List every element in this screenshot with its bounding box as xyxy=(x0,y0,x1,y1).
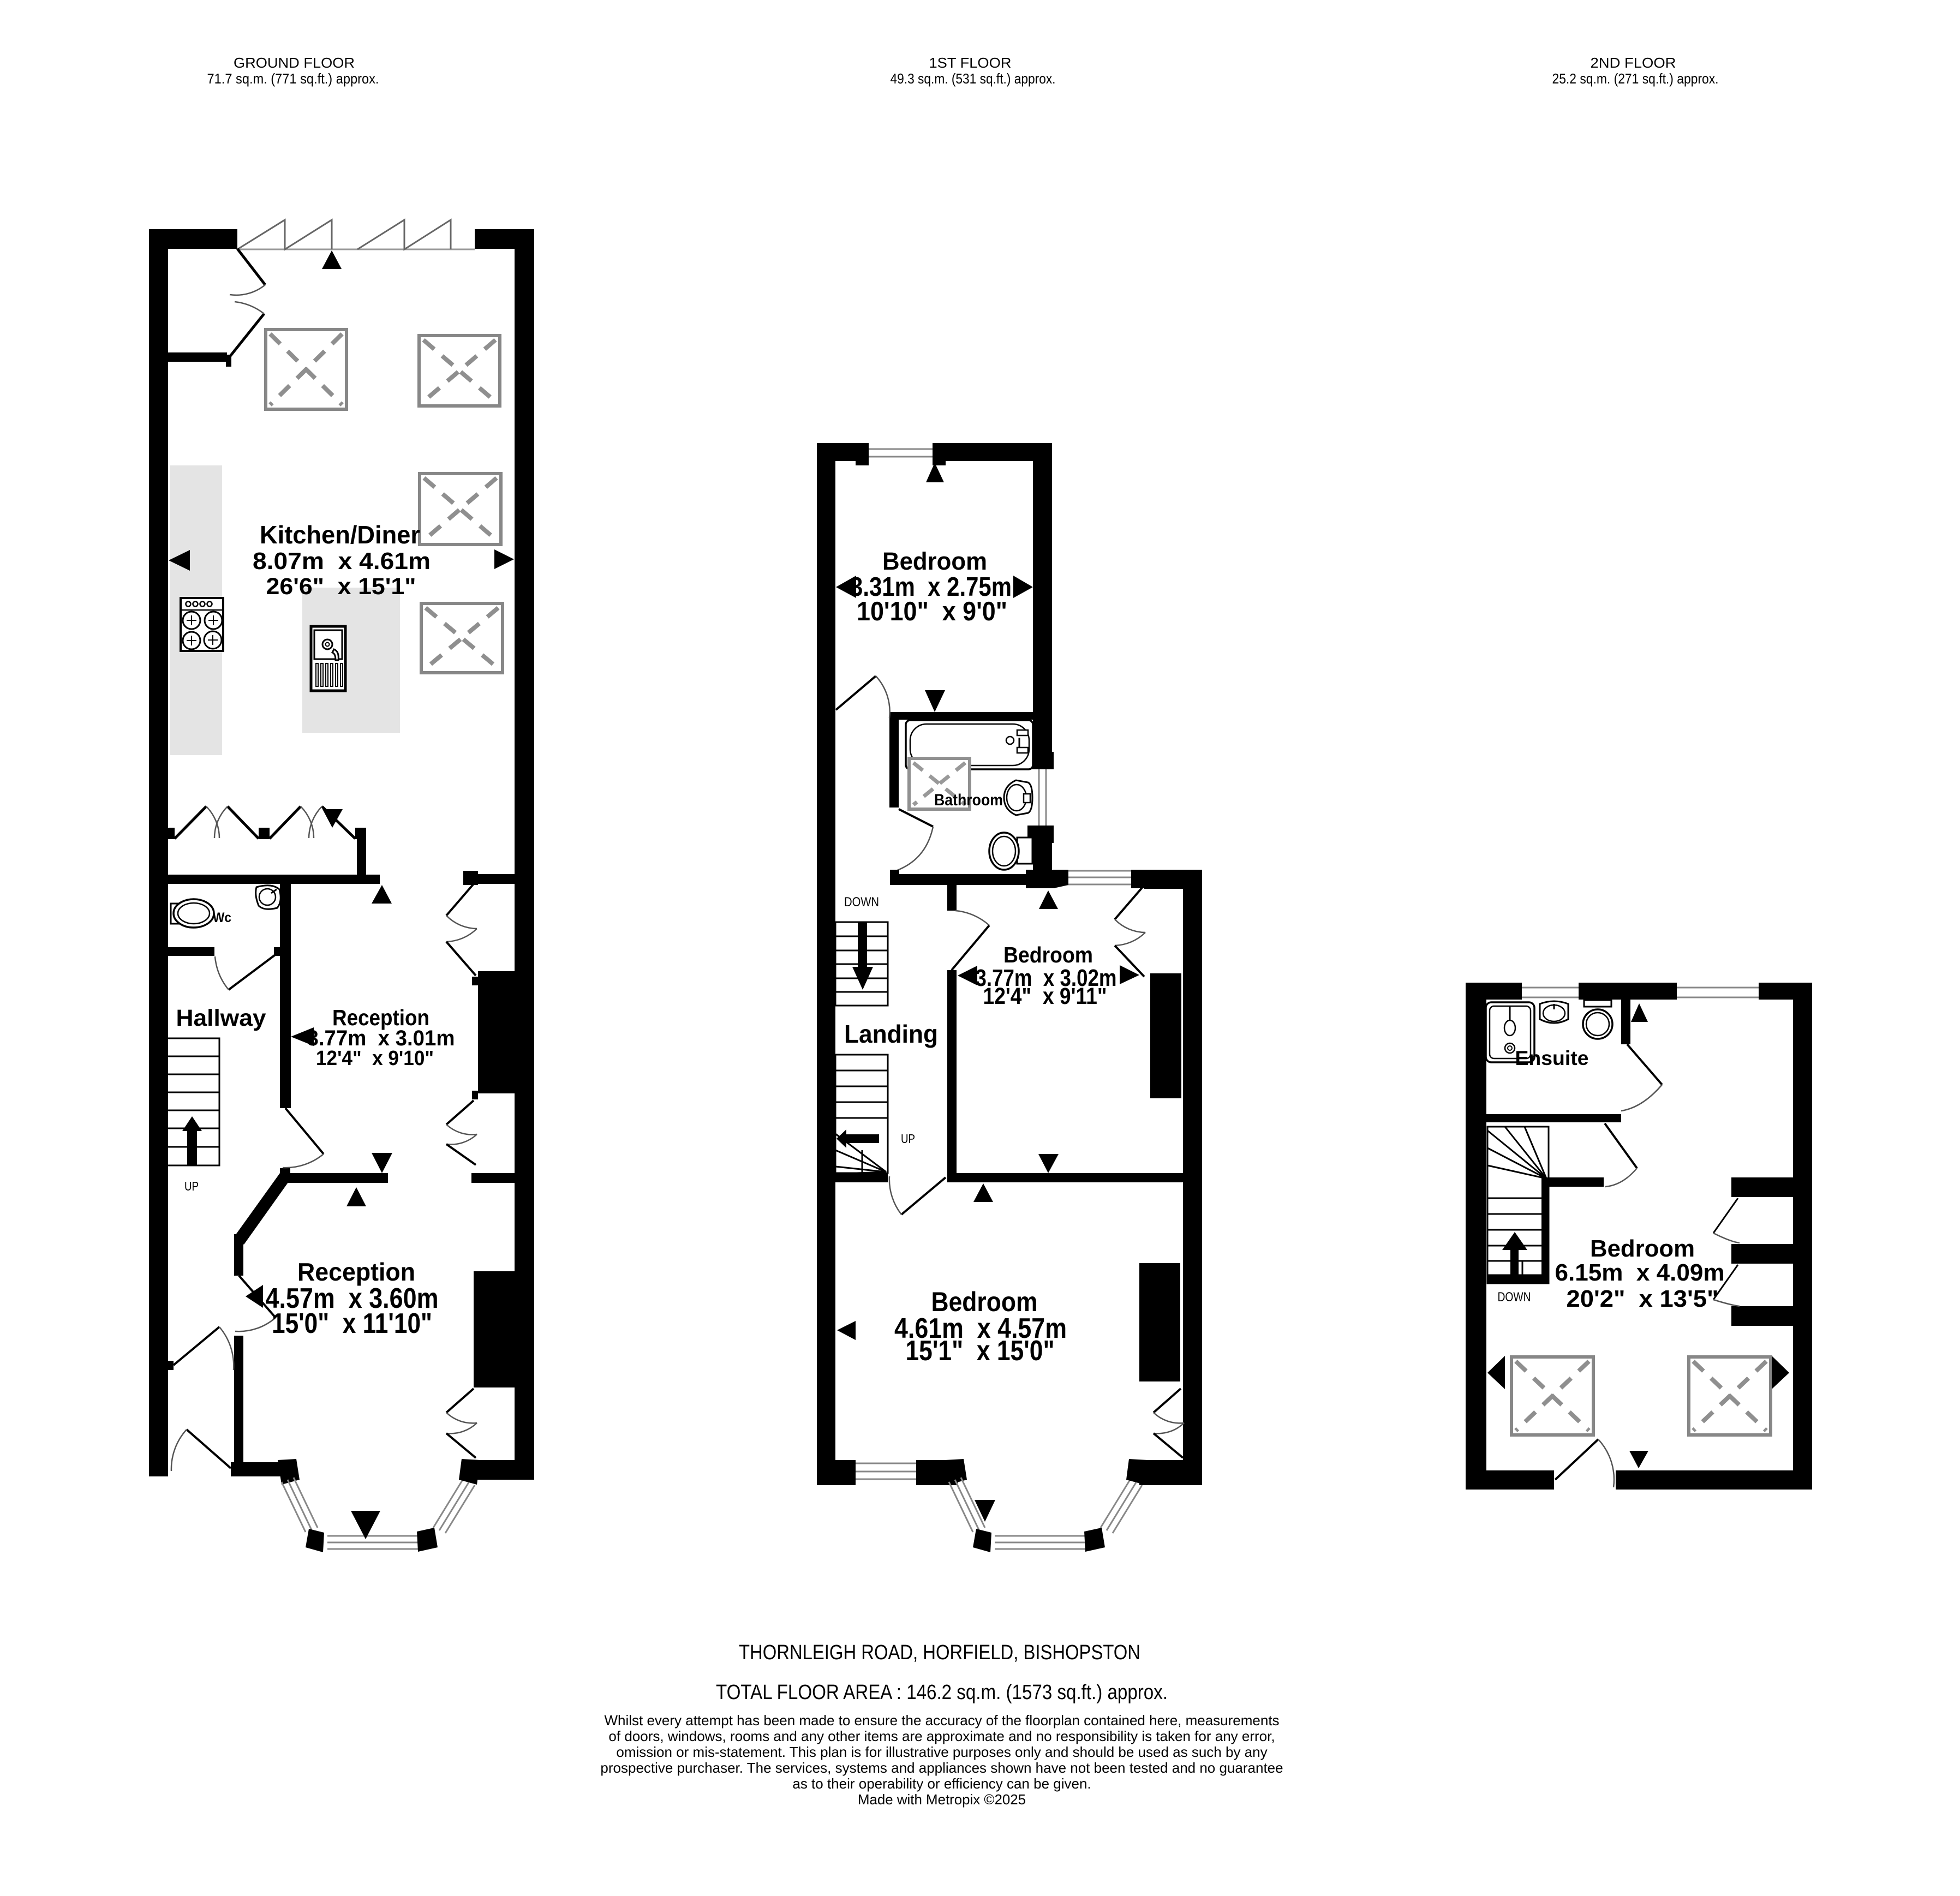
svg-text:12'4" x 9'10": 12'4" x 9'10" xyxy=(316,1047,434,1070)
svg-text:25.2 sq.m. (271 sq.ft.) approx: 25.2 sq.m. (271 sq.ft.) approx. xyxy=(1552,70,1719,87)
svg-text:Wc: Wc xyxy=(213,910,231,925)
svg-text:DOWN: DOWN xyxy=(1498,1290,1531,1305)
svg-text:as to their operability or eff: as to their operability or efficiency ca… xyxy=(792,1775,1091,1792)
svg-text:2ND FLOOR: 2ND FLOOR xyxy=(1591,55,1676,71)
svg-text:10'10" x 9'0": 10'10" x 9'0" xyxy=(857,597,1007,626)
svg-text:of doors, windows, rooms and a: of doors, windows, rooms and any other i… xyxy=(608,1728,1275,1744)
svg-text:Bedroom: Bedroom xyxy=(1590,1235,1695,1262)
svg-text:Hallway: Hallway xyxy=(176,1005,266,1031)
svg-text:15'0" x 11'10": 15'0" x 11'10" xyxy=(272,1308,432,1339)
svg-text:71.7 sq.m. (771 sq.ft.) approx: 71.7 sq.m. (771 sq.ft.) approx. xyxy=(207,70,379,87)
svg-text:20'2" x 13'5": 20'2" x 13'5" xyxy=(1567,1285,1719,1312)
svg-text:26'6" x 15'1": 26'6" x 15'1" xyxy=(266,573,416,600)
svg-text:49.3 sq.m. (531 sq.ft.) approx: 49.3 sq.m. (531 sq.ft.) approx. xyxy=(891,70,1056,87)
svg-text:1ST FLOOR: 1ST FLOOR xyxy=(929,55,1012,71)
svg-text:THORNLEIGH ROAD, HORFIELD, BIS: THORNLEIGH ROAD, HORFIELD, BISHOPSTON xyxy=(739,1641,1140,1664)
svg-text:Bathroom: Bathroom xyxy=(934,791,1003,809)
svg-text:Bedroom: Bedroom xyxy=(1003,942,1093,967)
svg-text:6.15m x 4.09m: 6.15m x 4.09m xyxy=(1555,1259,1725,1286)
svg-text:GROUND FLOOR: GROUND FLOOR xyxy=(234,55,355,71)
svg-text:omission or mis-statement. Thi: omission or mis-statement. This plan is … xyxy=(616,1744,1267,1760)
svg-text:UP: UP xyxy=(901,1132,915,1146)
svg-text:UP: UP xyxy=(184,1179,199,1193)
svg-text:Reception: Reception xyxy=(297,1258,415,1286)
svg-text:Ensuite: Ensuite xyxy=(1515,1047,1589,1069)
svg-text:Made with Metropix ©2025: Made with Metropix ©2025 xyxy=(858,1791,1026,1808)
svg-text:Kitchen/Diner: Kitchen/Diner xyxy=(260,521,420,549)
svg-text:15'1" x 15'0": 15'1" x 15'0" xyxy=(906,1335,1055,1367)
svg-text:TOTAL FLOOR AREA : 146.2 sq.m.: TOTAL FLOOR AREA : 146.2 sq.m. (1573 sq.… xyxy=(716,1681,1168,1704)
svg-text:DOWN: DOWN xyxy=(844,895,879,910)
svg-text:Landing: Landing xyxy=(844,1020,938,1048)
svg-text:12'4" x 9'11": 12'4" x 9'11" xyxy=(983,983,1107,1009)
svg-text:8.07m x 4.61m: 8.07m x 4.61m xyxy=(253,548,431,575)
svg-text:prospective purchaser. The ser: prospective purchaser. The services, sys… xyxy=(600,1760,1283,1776)
svg-text:Bedroom: Bedroom xyxy=(882,547,987,575)
svg-text:Whilst every attempt has been: Whilst every attempt has been made to en… xyxy=(604,1712,1279,1728)
